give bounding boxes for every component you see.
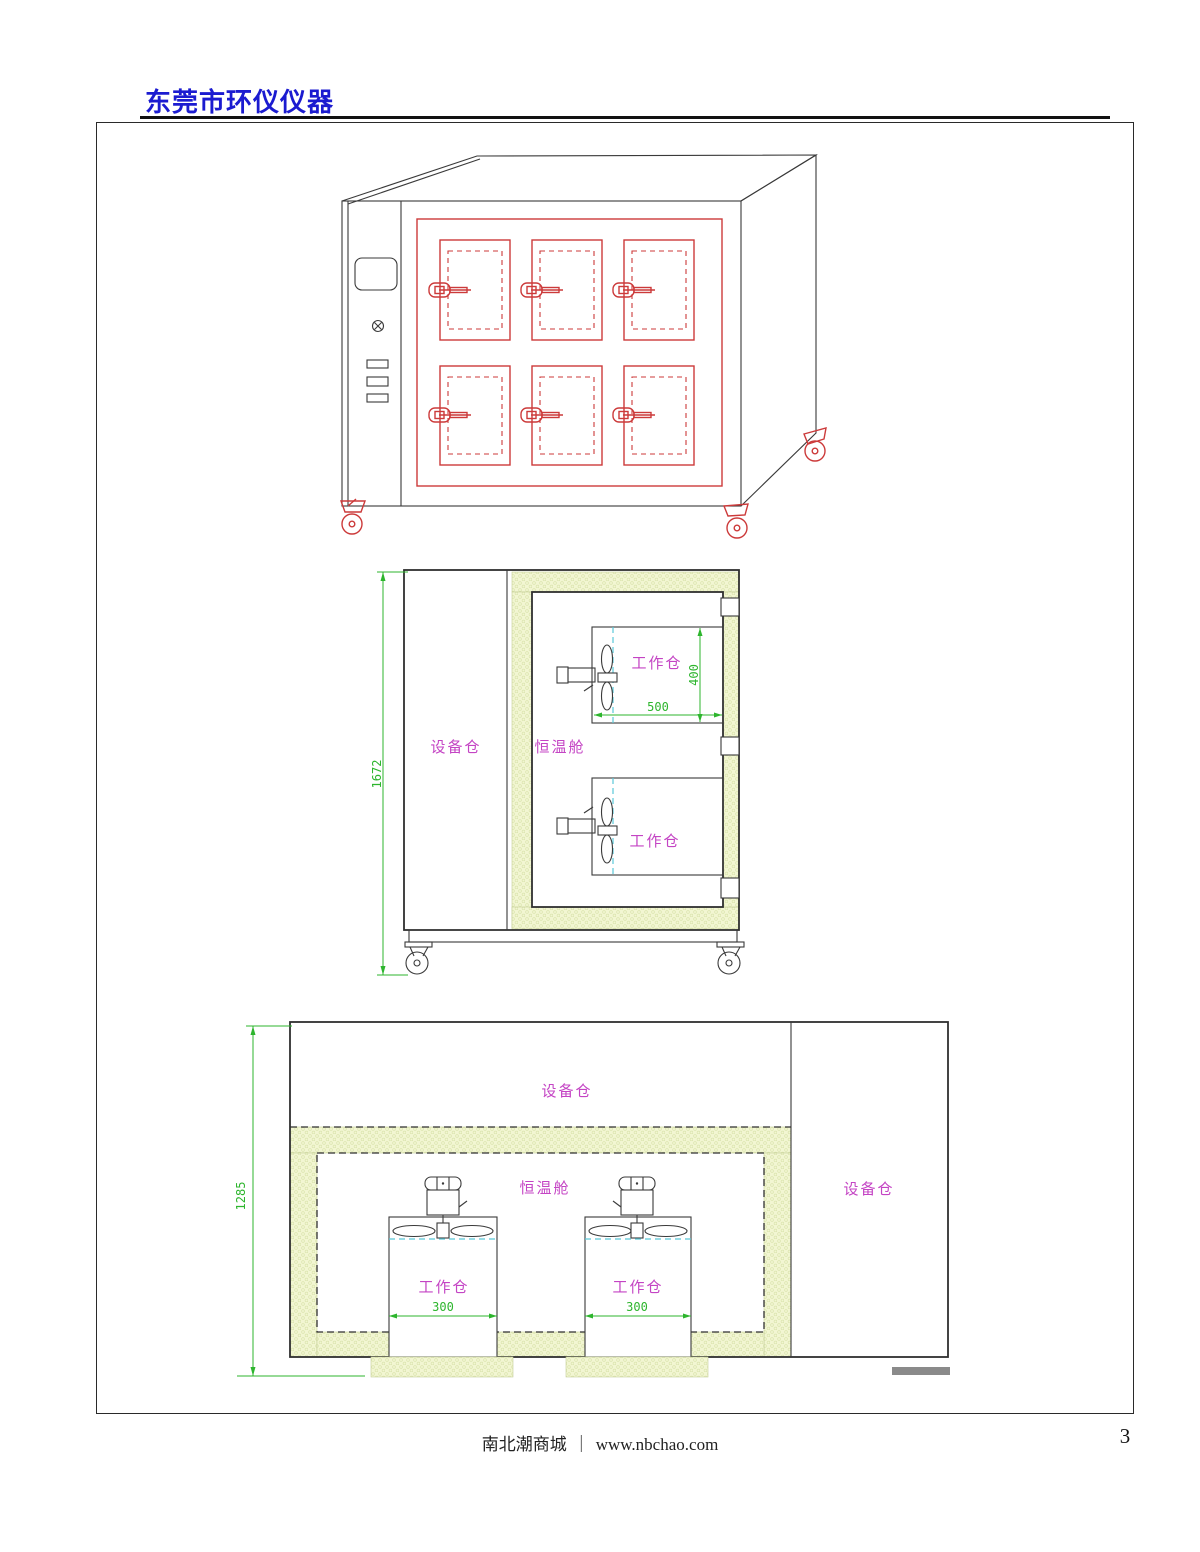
chamber-label: 恒温舱 bbox=[519, 1180, 570, 1197]
page-footer: 南北潮商城｜www.nbchao.com bbox=[0, 1430, 1200, 1455]
motor-icon bbox=[425, 1177, 467, 1215]
work-bay-left: 工作仓 300 bbox=[389, 1177, 497, 1357]
equipment-bay-label: 设备仓 bbox=[843, 1181, 894, 1198]
caster-wheel-icon bbox=[341, 499, 365, 534]
svg-text:400: 400 bbox=[687, 664, 701, 686]
footer-site-name: 南北潮商城 bbox=[482, 1435, 567, 1454]
door-frame-section bbox=[721, 598, 739, 616]
work-bay-label: 工作仓 bbox=[631, 655, 682, 672]
insulation-right bbox=[764, 1153, 791, 1357]
caster-wheel-icon bbox=[724, 504, 748, 538]
work-bay-label: 工作仓 bbox=[629, 833, 680, 850]
vent-switches bbox=[367, 360, 388, 402]
door-frame-section bbox=[721, 878, 739, 898]
chamber-door bbox=[429, 240, 510, 340]
work-bay-top: 工作仓 400 500 bbox=[557, 627, 723, 723]
footer-site-url: www.nbchao.com bbox=[596, 1435, 719, 1454]
support-base bbox=[566, 1357, 708, 1377]
front-section-view: 设备仓 设备仓 恒温舱 bbox=[234, 1022, 950, 1377]
chamber-door bbox=[521, 240, 602, 340]
door-latch-icon bbox=[521, 283, 563, 297]
work-bay-label: 工作仓 bbox=[612, 1279, 663, 1296]
base-plinth bbox=[409, 930, 737, 942]
svg-text:1672: 1672 bbox=[370, 760, 384, 789]
svg-text:1285: 1285 bbox=[234, 1182, 248, 1211]
motor-icon bbox=[613, 1177, 655, 1215]
fan-icon bbox=[598, 798, 617, 863]
door-latch-icon bbox=[429, 283, 471, 297]
chamber-label: 恒温舱 bbox=[534, 739, 585, 756]
insulation-top bbox=[290, 1127, 791, 1153]
door-frame-section bbox=[721, 737, 739, 755]
insulation-bottom bbox=[512, 907, 739, 929]
chamber-door bbox=[521, 366, 602, 465]
work-bay-bottom: 工作仓 bbox=[557, 778, 723, 875]
work-bay-right: 工作仓 300 bbox=[585, 1177, 691, 1357]
work-bay-label: 工作仓 bbox=[418, 1279, 469, 1296]
lock-icon bbox=[373, 321, 384, 332]
side-section-view: 设备仓 恒温舱 工作仓 bbox=[370, 570, 744, 975]
svg-text:300: 300 bbox=[626, 1300, 648, 1314]
insulation-bottom bbox=[497, 1332, 585, 1357]
insulation-bottom bbox=[691, 1332, 764, 1357]
equipment-bay-label: 设备仓 bbox=[541, 1083, 592, 1100]
chamber-door bbox=[613, 240, 694, 340]
door-latch-icon bbox=[429, 408, 471, 422]
caster-wheel-icon bbox=[717, 942, 744, 974]
insulation-left bbox=[512, 592, 532, 928]
page-number: 3 bbox=[1105, 1424, 1145, 1449]
door-latch-icon bbox=[613, 283, 655, 297]
dimension-1672: 1672 bbox=[370, 572, 408, 975]
insulation-bottom bbox=[317, 1332, 389, 1357]
svg-text:300: 300 bbox=[432, 1300, 454, 1314]
insulation-top bbox=[512, 572, 739, 592]
perspective-view bbox=[341, 155, 826, 538]
door-latch-icon bbox=[521, 408, 563, 422]
insulation-left bbox=[290, 1153, 317, 1357]
door-panel-frame bbox=[417, 219, 722, 486]
fan-icon bbox=[598, 645, 617, 710]
chamber-door bbox=[429, 366, 510, 465]
scale-bar bbox=[892, 1367, 950, 1375]
caster-wheel-icon bbox=[405, 942, 432, 974]
svg-text:500: 500 bbox=[647, 700, 669, 714]
caster-wheel-icon bbox=[804, 428, 826, 461]
door-latch-icon bbox=[613, 408, 655, 422]
equipment-bay-label: 设备仓 bbox=[430, 739, 481, 756]
support-base bbox=[371, 1357, 513, 1377]
dimension-400: 400 bbox=[687, 628, 703, 722]
document-page: 东莞市环仪仪器 bbox=[0, 0, 1200, 1552]
motor-icon bbox=[557, 807, 595, 834]
cabinet-top-face bbox=[342, 155, 816, 201]
cabinet-front-face bbox=[342, 201, 741, 506]
controller-display bbox=[355, 258, 397, 290]
footer-divider: ｜ bbox=[567, 1435, 596, 1454]
technical-drawings: 设备仓 恒温舱 工作仓 bbox=[0, 0, 1200, 1552]
motor-icon bbox=[557, 667, 595, 691]
control-panel bbox=[355, 258, 397, 402]
chamber-door bbox=[613, 366, 694, 465]
